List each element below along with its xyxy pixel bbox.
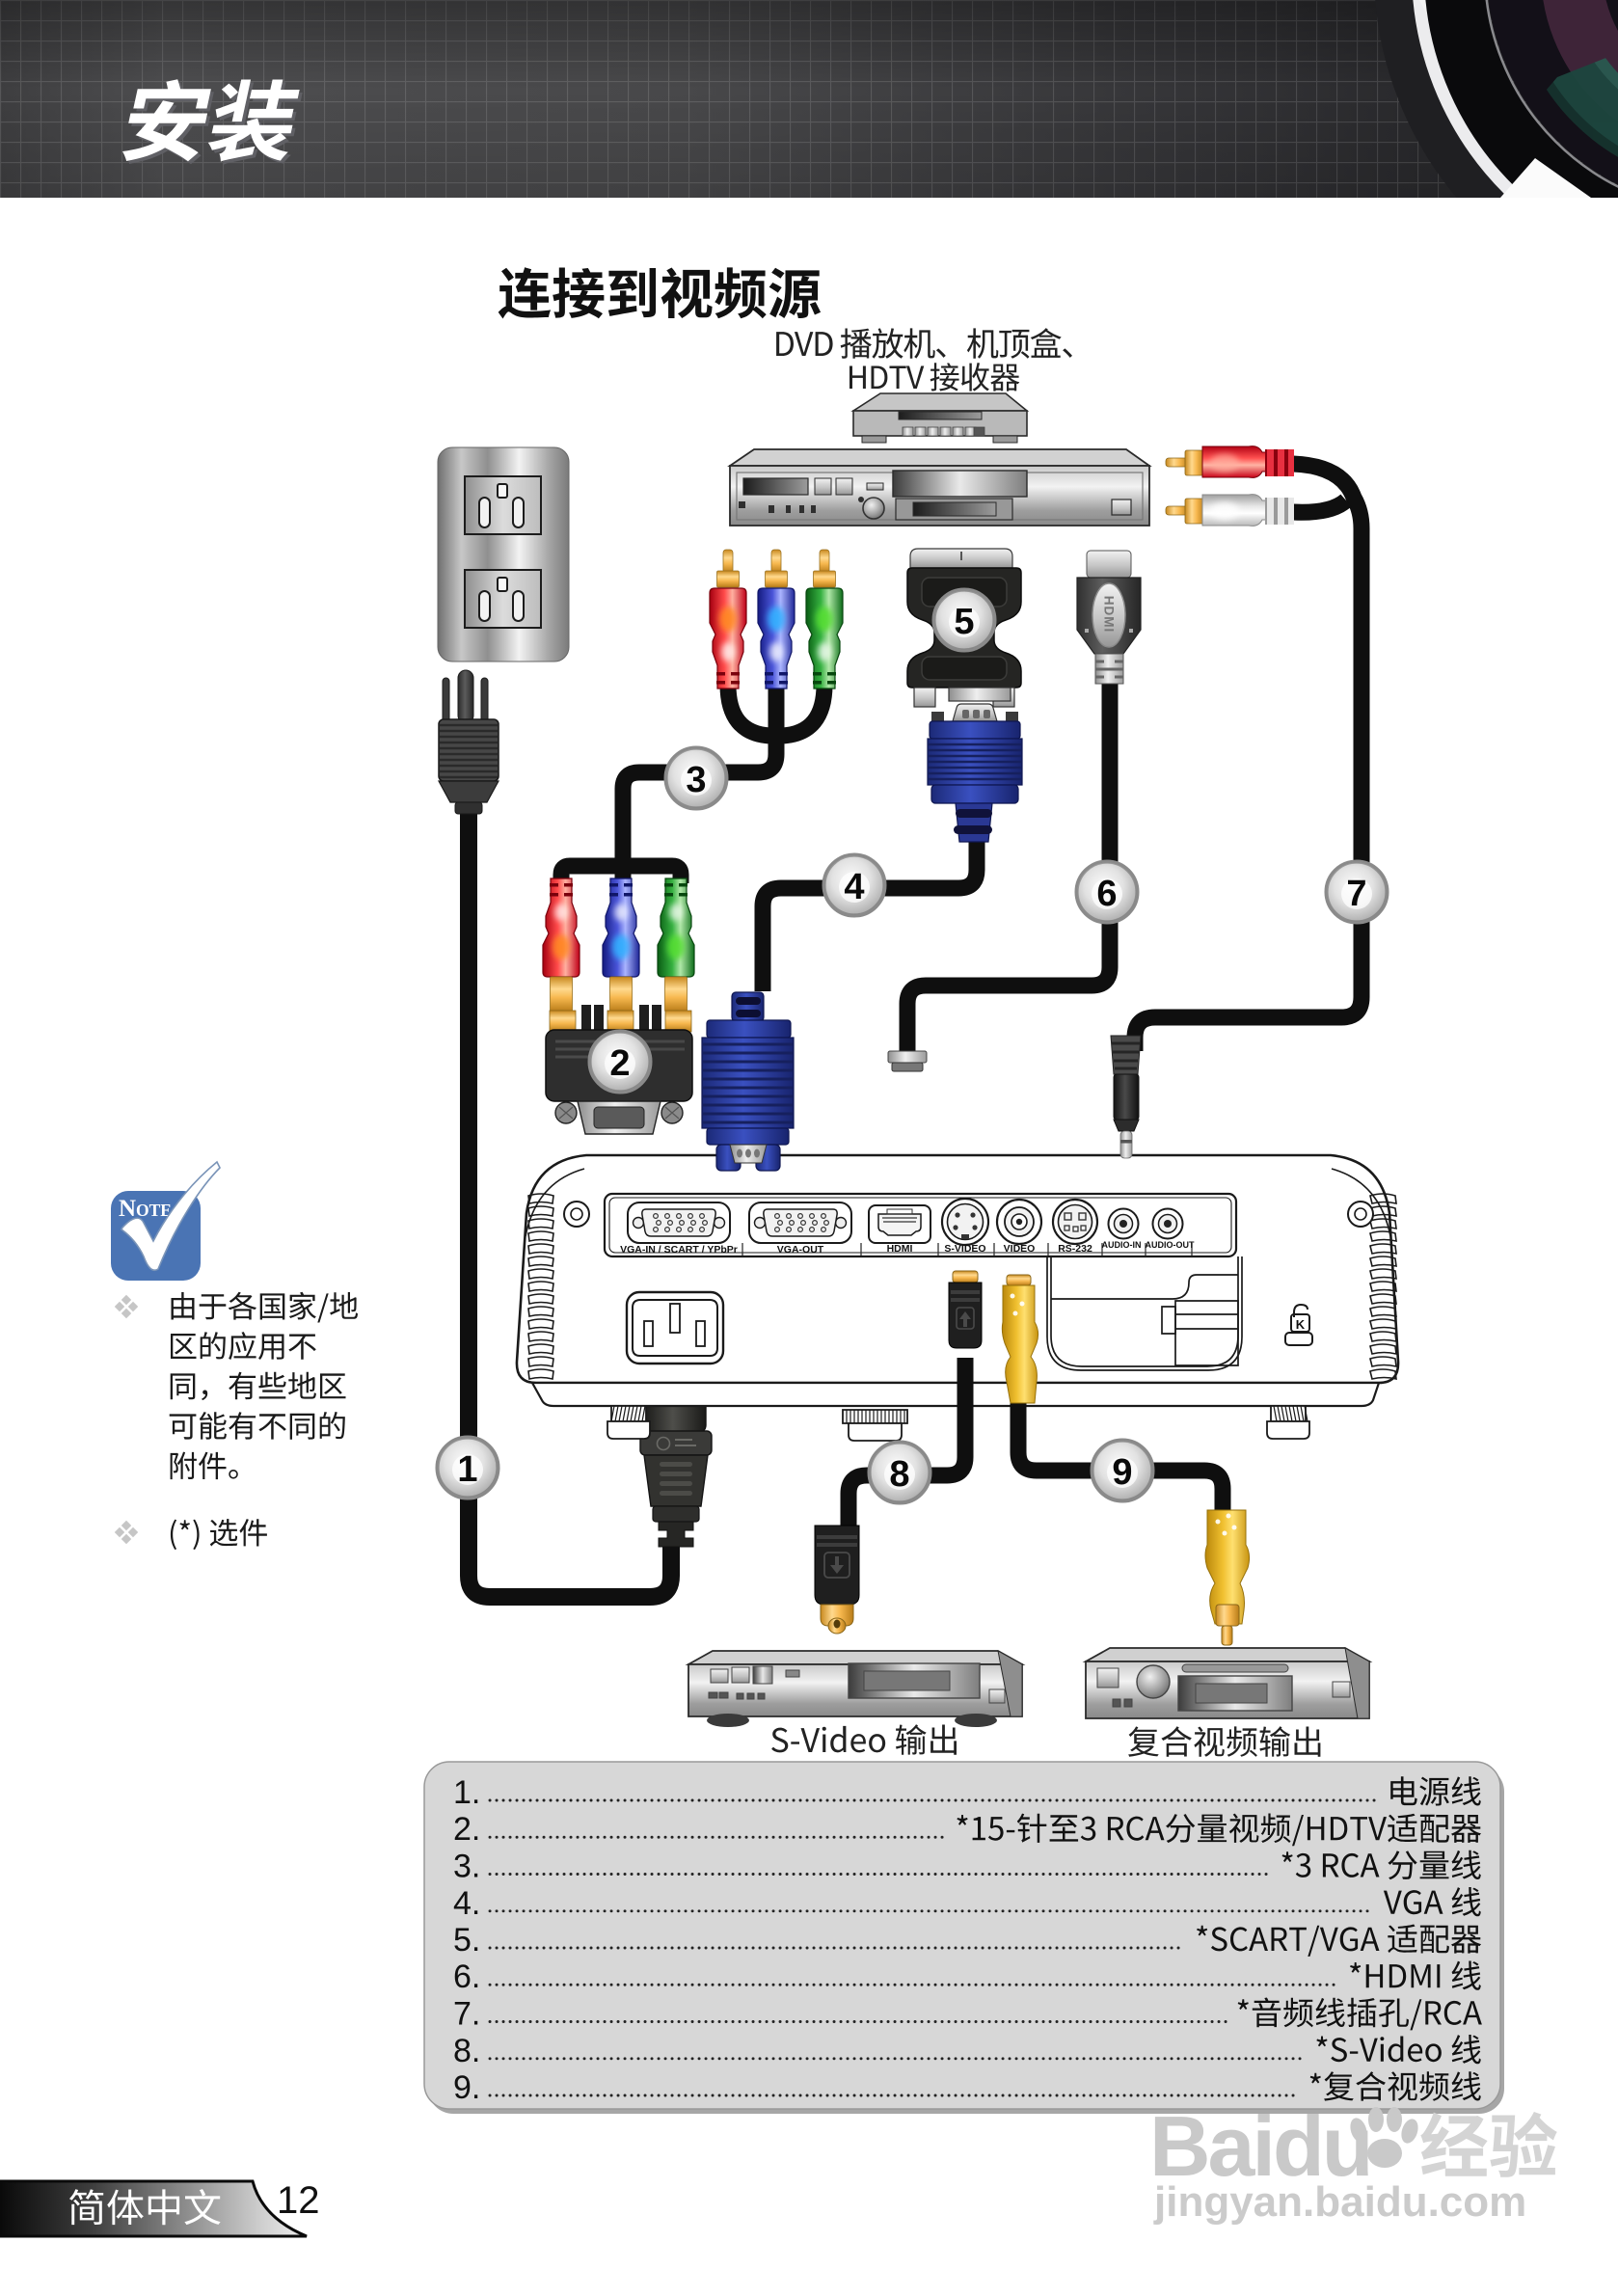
svg-text:AUDIO-OUT: AUDIO-OUT (1146, 1240, 1195, 1250)
svg-text:HDMI: HDMI (887, 1243, 913, 1255)
svg-text:AUDIO-IN: AUDIO-IN (1102, 1240, 1142, 1250)
svg-text:7.: 7. (453, 1996, 480, 2033)
svg-text:RS-232: RS-232 (1058, 1243, 1092, 1255)
svg-text:2.: 2. (453, 1811, 480, 1848)
svg-text:VGA-IN / SCART / YPbPr: VGA-IN / SCART / YPbPr (620, 1244, 738, 1256)
svg-text:S-VIDEO: S-VIDEO (944, 1243, 985, 1255)
svg-text:8.: 8. (453, 2033, 480, 2069)
svg-text:5: 5 (954, 602, 974, 642)
svg-text:2: 2 (609, 1043, 630, 1084)
svg-text:6.: 6. (453, 1958, 480, 1995)
svg-text:9: 9 (1112, 1452, 1132, 1493)
svg-text:4.: 4. (453, 1885, 480, 1922)
svg-text:jingyan.baidu.com: jingyan.baidu.com (1153, 2178, 1526, 2226)
svg-text:1.: 1. (453, 1774, 480, 1811)
svg-text:3.: 3. (453, 1849, 480, 1885)
svg-text:7: 7 (1346, 874, 1366, 914)
svg-text:N: N (119, 1196, 136, 1222)
svg-text:5.: 5. (453, 1922, 480, 1958)
svg-text:6: 6 (1096, 874, 1117, 914)
svg-text:9.: 9. (453, 2069, 480, 2106)
svg-text:1: 1 (457, 1449, 477, 1490)
svg-text:3: 3 (686, 760, 706, 800)
svg-text:4: 4 (844, 867, 864, 907)
svg-text:8: 8 (889, 1454, 909, 1495)
svg-text:VIDEO: VIDEO (1004, 1243, 1036, 1255)
svg-text:OTE: OTE (136, 1201, 172, 1220)
svg-text:K: K (1296, 1317, 1306, 1332)
svg-text:12: 12 (277, 2179, 320, 2222)
svg-text:HDMI: HDMI (1102, 596, 1117, 634)
svg-text:VGA-OUT: VGA-OUT (777, 1244, 824, 1256)
